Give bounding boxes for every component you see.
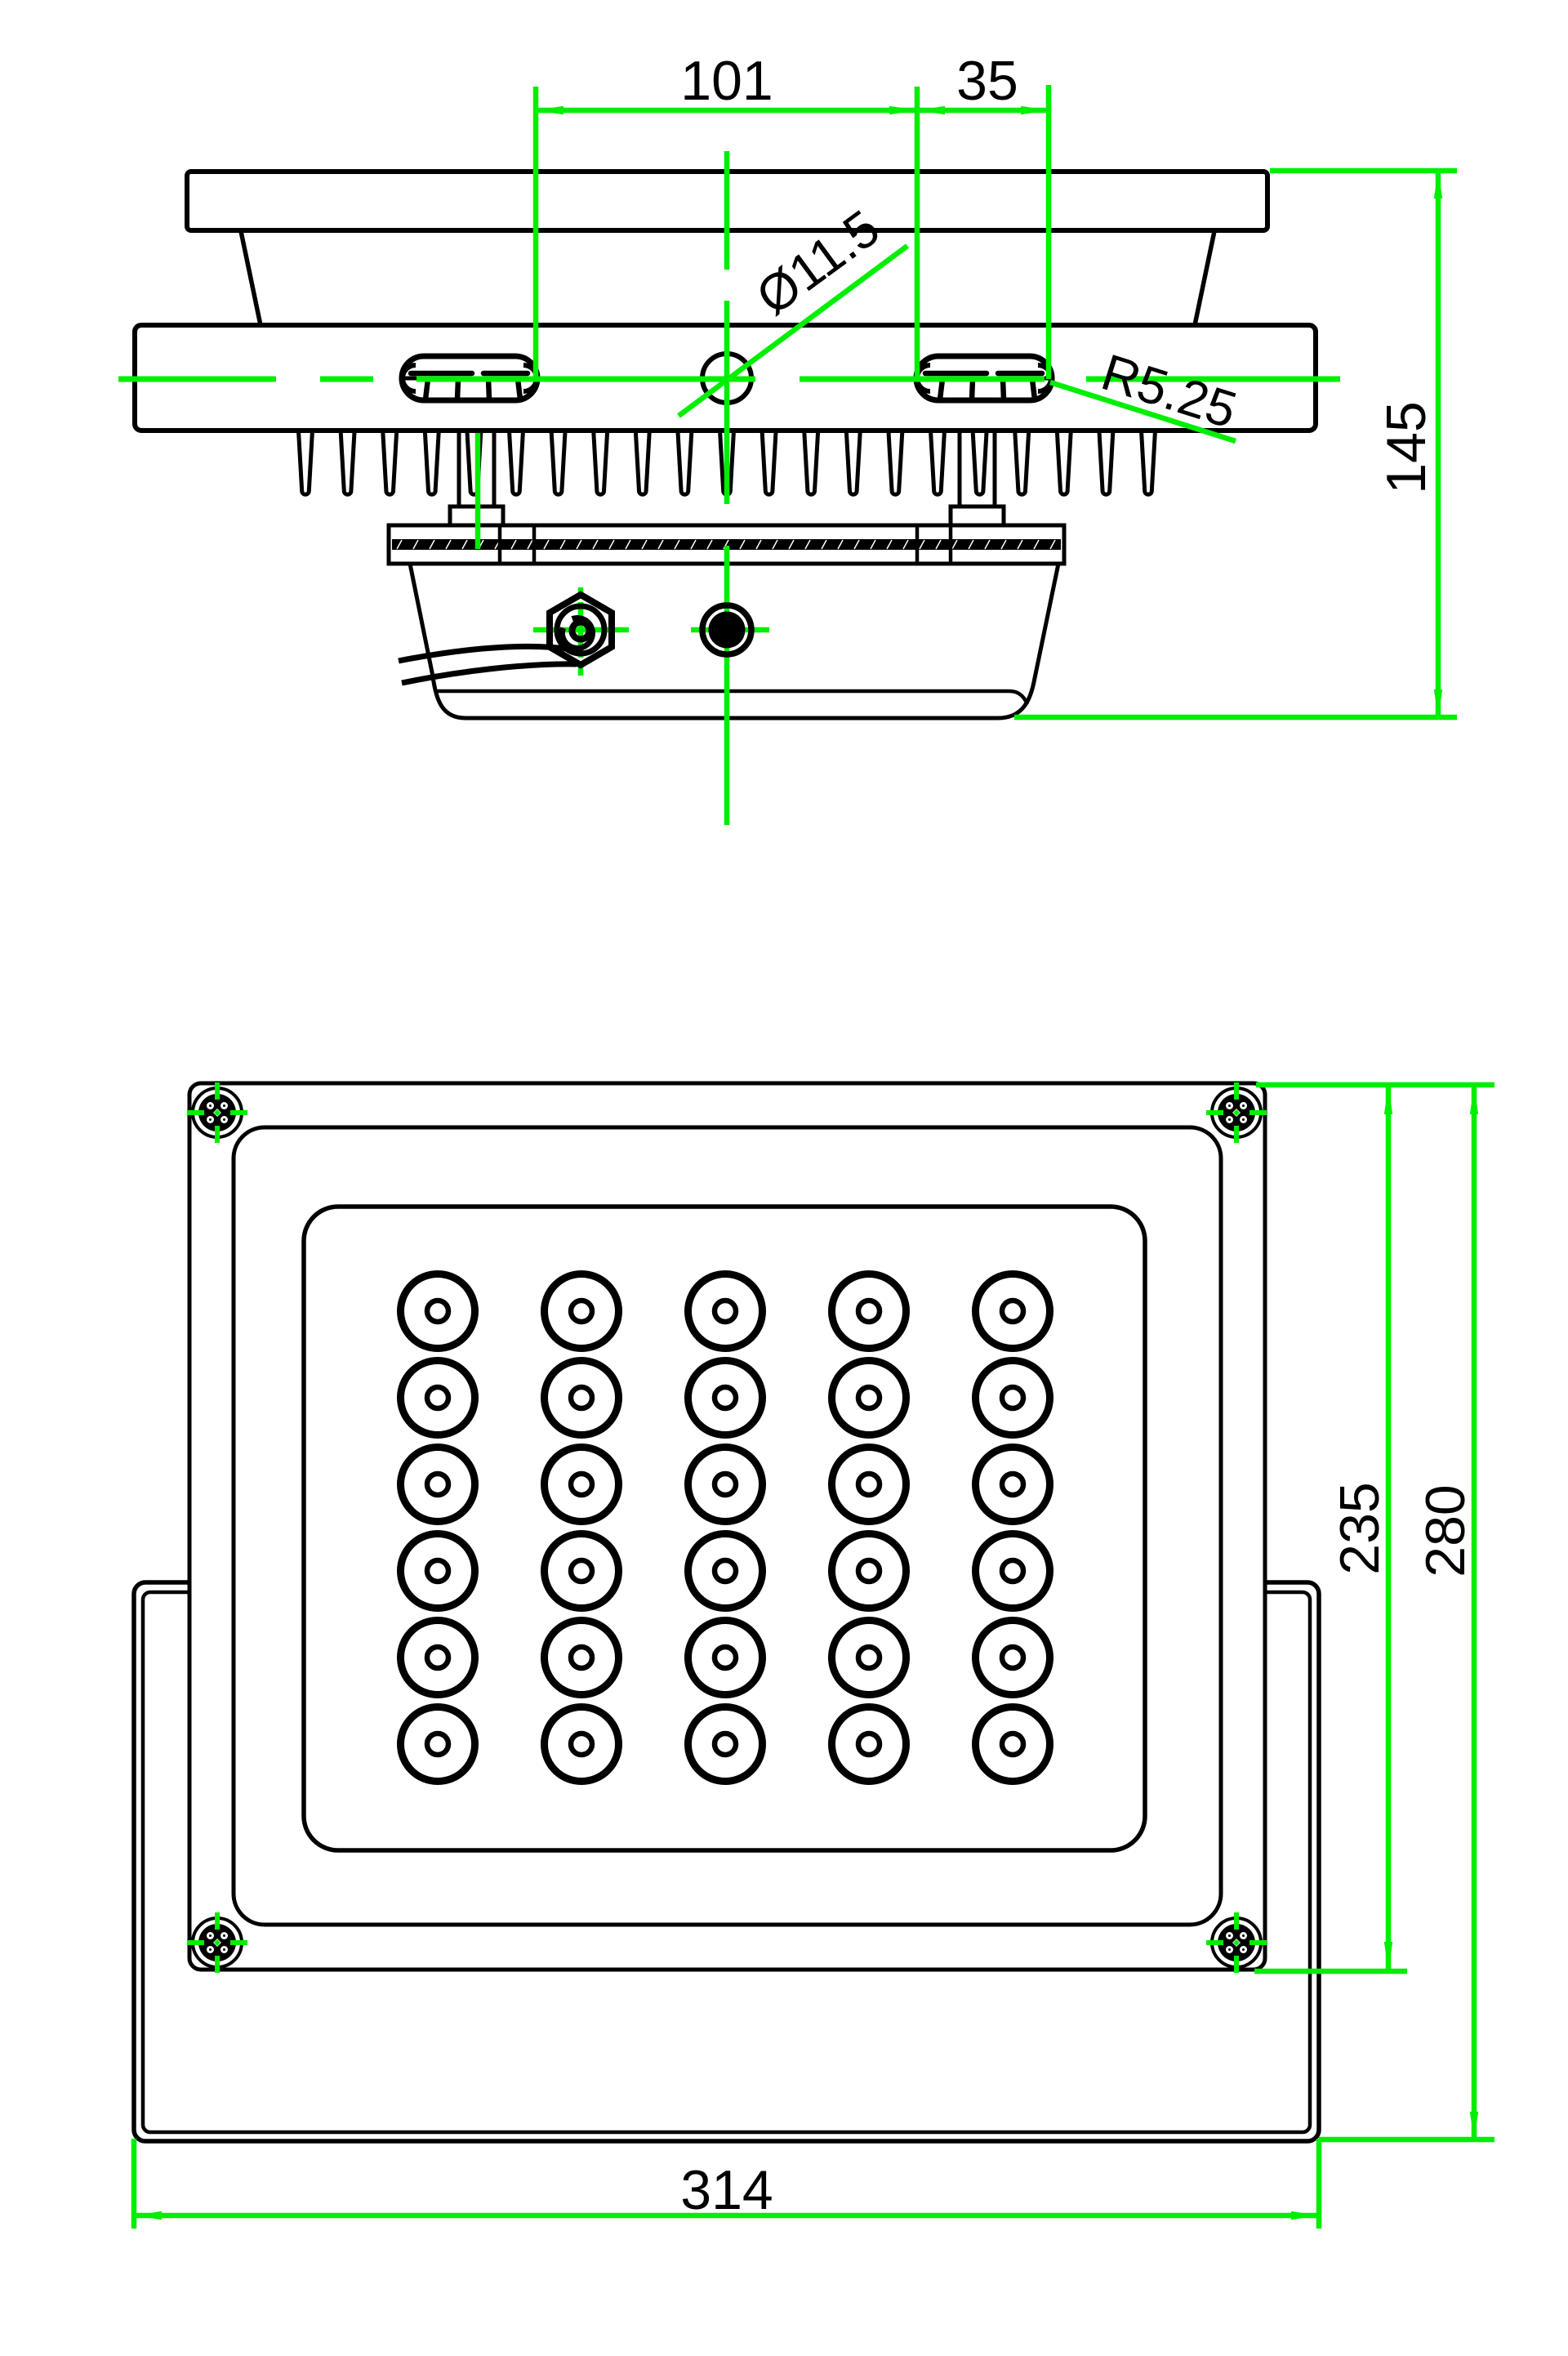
- svg-text:145: 145: [1375, 401, 1437, 493]
- svg-text:314: 314: [680, 2159, 773, 2221]
- svg-text:280: 280: [1414, 1484, 1477, 1577]
- svg-text:235: 235: [1329, 1482, 1391, 1574]
- svg-text:35: 35: [956, 50, 1018, 112]
- svg-text:101: 101: [680, 50, 773, 112]
